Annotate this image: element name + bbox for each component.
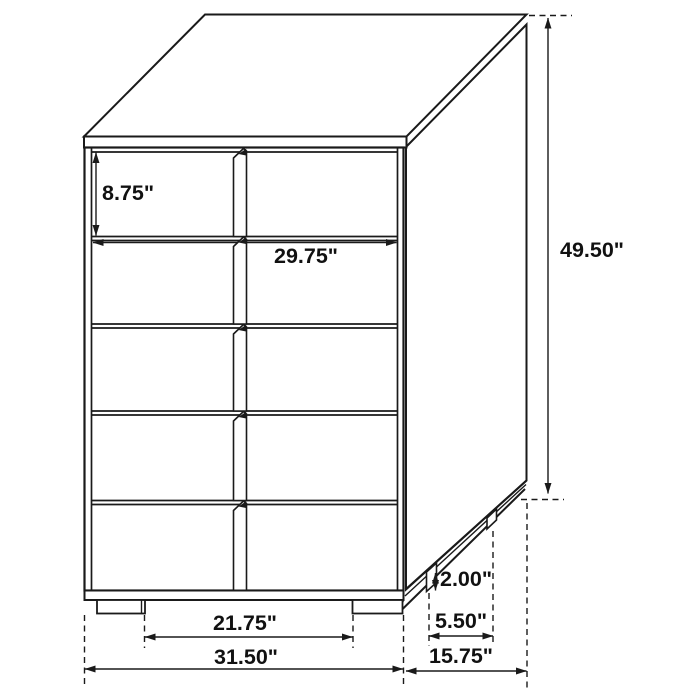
label-overall-height: 49.50"	[560, 238, 624, 262]
drawer-handles	[234, 149, 247, 591]
drawer-handle-4	[234, 412, 247, 501]
label-overall-depth: 15.75"	[429, 644, 493, 668]
label-drawer-width: 29.75"	[274, 244, 338, 268]
top-panel-front-edge	[84, 137, 407, 148]
label-overall-width: 31.50"	[214, 645, 278, 669]
label-foot-height: 2.00"	[440, 567, 492, 591]
front-foot-left	[97, 600, 145, 614]
label-front-foot-spacing: 21.75"	[213, 611, 277, 635]
drawer-handle-2	[234, 237, 247, 324]
front-foot-right	[353, 600, 403, 614]
chest-outline	[84, 15, 527, 591]
drawer-handle-5	[234, 501, 247, 591]
front-base-rail	[85, 591, 404, 601]
label-side-foot-spacing: 5.50"	[435, 609, 487, 633]
label-drawer-height: 8.75"	[102, 181, 154, 205]
chest-dimension-drawing: 8.75" 29.75" 49.50" 2.00" 5.50" 21.75" 3…	[0, 0, 700, 700]
drawer-handle-3	[234, 325, 247, 412]
drawer-handle-1	[234, 149, 247, 237]
dimension-diagram-canvas: 8.75" 29.75" 49.50" 2.00" 5.50" 21.75" 3…	[0, 0, 700, 700]
